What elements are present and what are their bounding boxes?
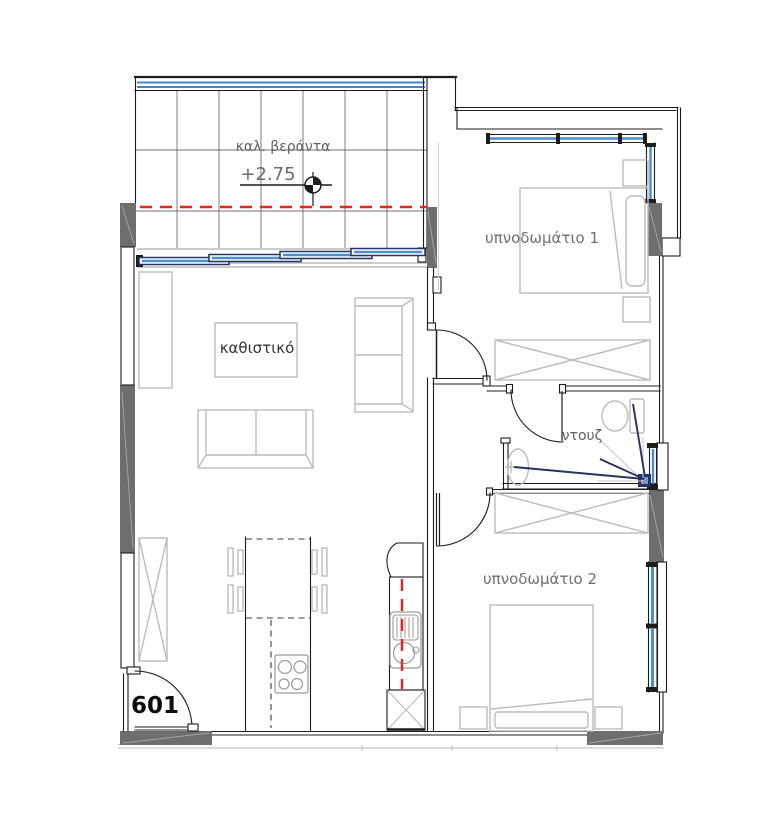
bedroom1-wardrobe — [495, 340, 650, 380]
bedroom1-label: υπνοδωμάτιο 1 — [485, 229, 599, 247]
veranda-right-edge — [424, 77, 428, 248]
slider-panel-4 — [351, 249, 425, 256]
entry-door-jamb — [127, 667, 140, 674]
bedroom2-room: υπνοδωμάτιο 2 — [460, 493, 648, 731]
cooktop — [275, 655, 308, 693]
bedroom2-label: υπνοδωμάτιο 2 — [483, 570, 597, 588]
kitchen-island — [246, 537, 311, 731]
floor-plan: καλ. βεράντα +2.75 — [0, 0, 784, 832]
wall-step — [662, 238, 680, 256]
veranda-room: καλ. βεράντα +2.75 — [120, 77, 456, 248]
bedroom2-wardrobe — [495, 493, 648, 533]
sliding-glass-door — [136, 248, 427, 267]
bedroom2-door — [437, 493, 491, 546]
kitchen-sink — [390, 612, 421, 668]
bedroom1-corner-window — [486, 133, 656, 203]
veranda-label: καλ. βεράντα — [236, 139, 331, 155]
living-label: καθιστικό — [220, 339, 295, 357]
bedroom1-door — [437, 330, 488, 380]
bedroom2-bed — [460, 605, 622, 731]
wardrobe-hall — [139, 538, 167, 661]
sofa-horizontal — [198, 410, 313, 468]
shower-label: ντουζ — [562, 428, 603, 444]
dining-chairs — [228, 548, 327, 613]
bathroom-door — [511, 390, 563, 442]
bedroom1-room: υπνοδωμάτιο 1 — [485, 160, 650, 380]
cabinet — [139, 272, 172, 388]
sofa-vertical — [355, 298, 413, 412]
bathroom: ντουζ — [505, 399, 645, 485]
balcony-railing — [135, 83, 427, 91]
kitchen-counter — [387, 543, 425, 730]
veranda-elevation: +2.75 — [240, 164, 295, 185]
bedroom2-window — [646, 562, 667, 692]
kitchen-corridor-wall — [428, 378, 434, 731]
kitchen — [228, 537, 425, 731]
base-cabinet-x — [387, 690, 425, 730]
unit-number: 601 — [131, 693, 179, 719]
south-wall — [212, 732, 587, 736]
